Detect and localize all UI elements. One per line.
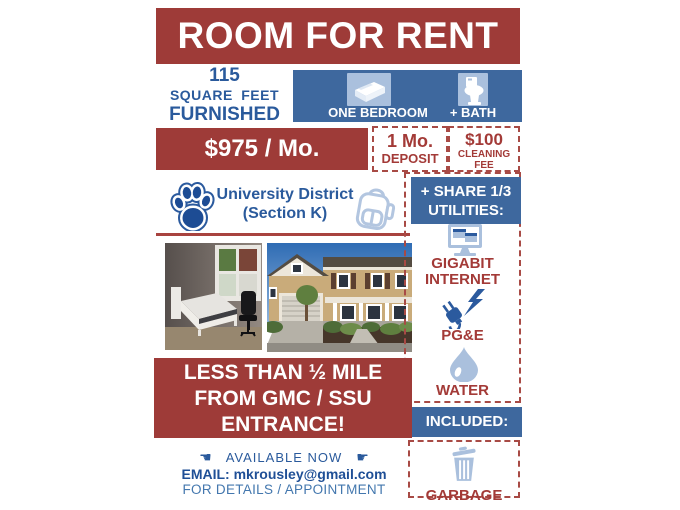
location-line2: (Section K) [215, 204, 355, 223]
rent-price-banner: $975 / Mo. [156, 128, 368, 170]
garbage-label: GARBAGE [410, 487, 518, 504]
red-divider-line [156, 233, 410, 236]
included-header: INCLUDED: [412, 407, 522, 437]
cleaning-label: CLEANING [450, 149, 518, 160]
share-utilities-line1: + SHARE 1/3 [411, 182, 521, 201]
cleaning-fee-box: $100 CLEANING FEE [448, 126, 520, 172]
power-plug-icon [438, 289, 490, 329]
distance-line2: FROM GMC / SSU [154, 386, 412, 412]
distance-line1: LESS THAN ½ MILE [154, 360, 412, 386]
deposit-label: DEPOSIT [374, 151, 446, 166]
pge-label: PG&E [409, 327, 516, 344]
furnished-label: FURNISHED [169, 104, 280, 126]
toilet-icon [458, 73, 488, 106]
square-feet-label: SQUARE FEET [170, 86, 279, 104]
location-line1: University District [215, 185, 355, 204]
desktop-computer-icon [442, 224, 488, 258]
backpack-icon [352, 184, 398, 236]
left-pointing-hand-icon: ☚ [185, 450, 226, 466]
garbage-box: GARBAGE [408, 440, 520, 498]
distance-line3: ENTRANCE! [154, 412, 412, 438]
contact-details: FOR DETAILS / APPOINTMENT [156, 482, 412, 497]
paw-print-icon [170, 179, 216, 231]
flyer-title: ROOM FOR RENT [178, 15, 499, 56]
share-utilities-header: + SHARE 1/3 UTILITIES: [411, 177, 521, 224]
share-utilities-line2: UTILITIES: [411, 201, 521, 220]
square-feet-number: 115 [209, 65, 240, 86]
contact-email: EMAIL: mkrousley@gmail.com [156, 466, 412, 482]
flyer-title-banner: ROOM FOR RENT [156, 8, 520, 64]
distance-banner: LESS THAN ½ MILE FROM GMC / SSU ENTRANCE… [154, 358, 412, 438]
water-label: WATER [409, 382, 516, 399]
gigabit-internet-label: GIGABIT INTERNET [409, 256, 516, 288]
bedroom-bath-box: ONE BEDROOM + BATH [293, 70, 522, 122]
one-bedroom-label: ONE BEDROOM [323, 106, 433, 120]
fee-label: FEE [450, 160, 518, 171]
bedroom-photo [165, 243, 262, 350]
cleaning-fee-amount: $100 [450, 131, 518, 149]
room-for-rent-flyer: ROOM FOR RENT 115 SQUARE FEET FURNISHED … [0, 0, 680, 510]
availability-row: ☚AVAILABLE NOW☛ [156, 450, 412, 466]
rent-price: $975 / Mo. [205, 135, 320, 162]
water-drop-icon [447, 346, 481, 382]
location-text: University District (Section K) [215, 185, 355, 223]
house-photo [267, 243, 412, 352]
trash-can-icon [447, 445, 481, 481]
availability-text: AVAILABLE NOW [226, 450, 343, 465]
room-size-block: 115 SQUARE FEET FURNISHED [156, 64, 293, 126]
deposit-box: 1 Mo. DEPOSIT [372, 126, 448, 172]
right-pointing-hand-icon: ☛ [342, 450, 383, 466]
deposit-amount: 1 Mo. [374, 131, 446, 151]
bed-icon [347, 73, 391, 106]
bath-label: + BATH [433, 106, 513, 120]
